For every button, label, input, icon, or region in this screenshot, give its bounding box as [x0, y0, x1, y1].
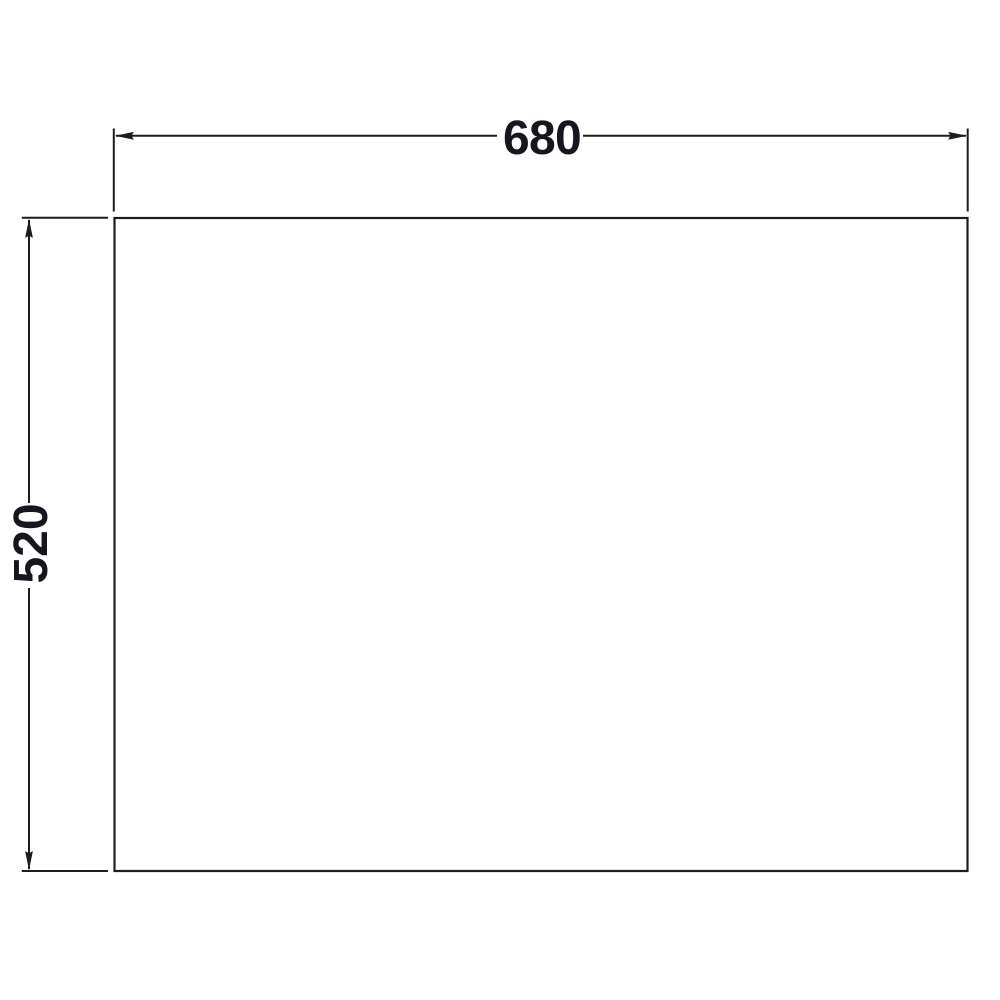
- svg-text:520: 520: [5, 503, 58, 583]
- svg-text:680: 680: [503, 112, 581, 165]
